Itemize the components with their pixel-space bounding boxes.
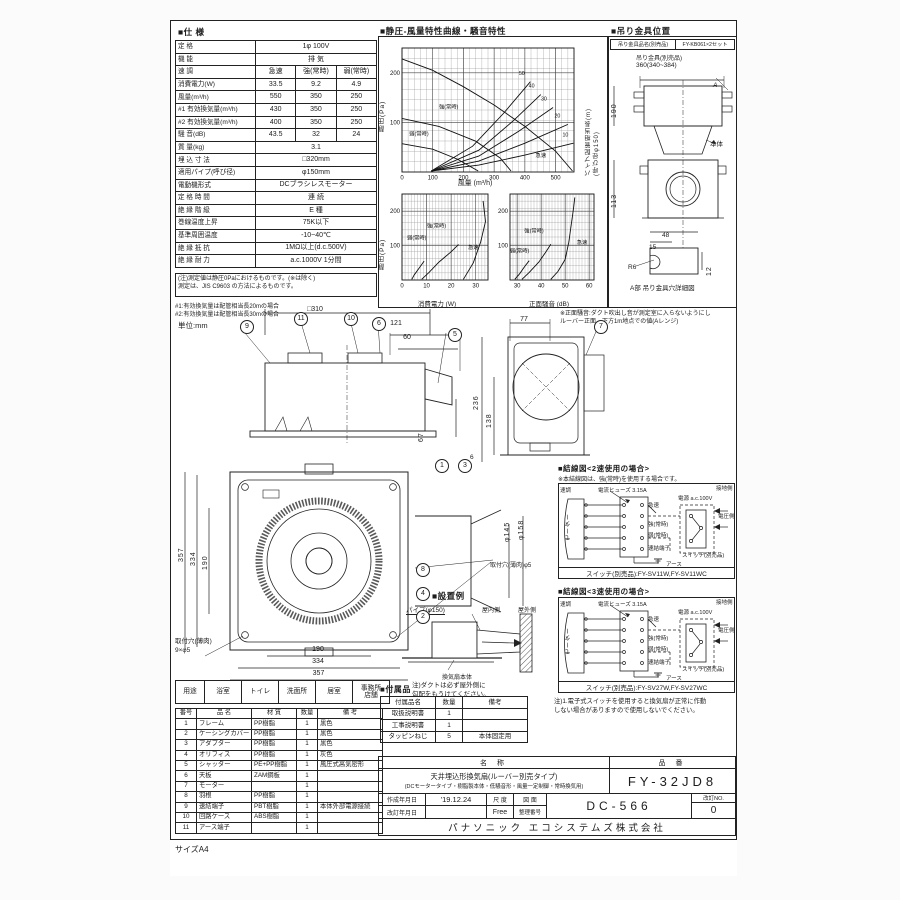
wiring2-tap-low: 弱(常時) xyxy=(648,531,668,539)
parts-cell: ABS樹脂 xyxy=(252,812,297,822)
spec-value: 350 xyxy=(296,91,336,104)
seiri-label: 整理番号 xyxy=(513,805,547,819)
acc-row: タッピンねじ5本体固定用 xyxy=(381,731,528,743)
parts-row: 1フレームPP樹脂1黒色 xyxy=(176,719,383,729)
spec-row: 基準周囲温度-10~40℃ xyxy=(176,229,377,242)
parts-row: 11アース端子1 xyxy=(176,823,383,833)
spec-value: 1φ 100V xyxy=(256,41,377,54)
sheet-size-label: サイズA4 xyxy=(175,844,209,855)
parts-header: 備 考 xyxy=(318,709,383,719)
spec-value: 24 xyxy=(336,129,376,142)
face-dim-357l: 357 xyxy=(178,532,186,562)
wiring3-power-label: 電源 a.c.100V xyxy=(678,608,712,616)
spec-value: 33.5 xyxy=(256,78,296,91)
acc-cell: 1 xyxy=(436,720,463,732)
parts-header-row: 番号品 名材 質数量備 考 xyxy=(176,709,383,719)
spec-row: 適用パイプ(呼び径)φ150mm xyxy=(176,166,377,179)
x-tick: 50 xyxy=(562,284,569,290)
spec-value: □320mm xyxy=(256,154,377,167)
parts-header: 品 名 xyxy=(197,709,252,719)
acc-cell: 1 xyxy=(436,708,463,720)
face-dim-145: φ145 xyxy=(504,508,512,542)
accessories-table: 付属品名数量備考取扱説明書1工事説明書1タッピンねじ5本体固定用 xyxy=(380,696,528,743)
series-label: 強(常時) xyxy=(524,227,544,235)
wiring2-fuse-label: 電流ヒューズ 3.15A xyxy=(598,486,647,494)
series-label: 20 xyxy=(554,113,560,119)
parts-cell xyxy=(318,771,383,781)
parts-cell: 11 xyxy=(176,823,197,833)
bracket-dim-12: 12 xyxy=(706,256,714,276)
install-outdoor-label: 屋外側 xyxy=(518,605,536,614)
parts-header: 材 質 xyxy=(252,709,297,719)
titleblock-name-cell: 天井埋込形換気扇(ルーバー別売タイプ) (DCモータータイプ・樹脂製本体・低騒音… xyxy=(378,768,610,794)
parts-cell xyxy=(252,781,297,791)
parts-cell: PP樹脂 xyxy=(252,719,297,729)
wiring2-volt-side: 電圧側 xyxy=(718,512,735,520)
balloon-7: 7 xyxy=(594,320,608,334)
spec-value: 連 続 xyxy=(256,192,377,205)
spec-row: 機 能排 気 xyxy=(176,53,377,66)
acc-header: 付属品名 xyxy=(381,697,436,709)
series-label: 40 xyxy=(529,84,535,90)
model-number: FY-32JD8 xyxy=(609,768,736,794)
acc-cell: 5 xyxy=(436,731,463,743)
spec-label: #2 有効換気量(m³/h) xyxy=(176,116,256,129)
face-dim-357b: 357 xyxy=(266,670,371,677)
spec-row: 速 調急速強(常時)弱(常時) xyxy=(176,66,377,79)
spec-value: 250 xyxy=(336,103,376,116)
wiring3-terminal-label: 速結端子 xyxy=(648,658,670,666)
parts-cell: PP樹脂 xyxy=(252,729,297,739)
spec-value: 1MΩ以上(d.c.500V) xyxy=(256,242,377,255)
parts-cell: アダプター xyxy=(197,740,252,750)
balloon-10: 10 xyxy=(344,312,358,326)
balloon-2: 2 xyxy=(416,610,430,624)
bracket-dim-15: 15 xyxy=(649,244,656,251)
x-tick: 20 xyxy=(448,284,455,290)
spec-label: 絶 縁 耐 力 xyxy=(176,255,256,268)
spec-label: 機 能 xyxy=(176,53,256,66)
spec-value: 75K以下 xyxy=(256,217,377,230)
y-tick: 200 xyxy=(390,209,401,215)
parts-cell: 1 xyxy=(297,719,318,729)
spec-value: DCブラシレスモーター xyxy=(256,179,377,192)
wiring3-speed-label: 速調 xyxy=(560,600,571,608)
spec-value: 強(常時) xyxy=(296,66,336,79)
usage-item: トイレ xyxy=(242,681,279,704)
wiring2-tap-rapid: 急速 xyxy=(648,501,659,509)
usage-header: 用途 xyxy=(176,681,205,704)
parts-cell: シャッター xyxy=(197,760,252,770)
parts-cell: 1 xyxy=(297,760,318,770)
usage-row: 用途浴室トイレ洗面所居室事務所 店舗 xyxy=(176,681,390,704)
parts-row: 4オリフィスPP樹脂1灰色 xyxy=(176,750,383,760)
face-hole-note: 取付穴(薄肉)φ5 xyxy=(490,560,531,569)
parts-row: 2ケーシングカバーPP樹脂1黒色 xyxy=(176,729,383,739)
power-chart: 0102030100200急速強(常時)弱(常時) xyxy=(382,190,492,296)
spec-label: 定 格 xyxy=(176,41,256,54)
spec-value: -10~40℃ xyxy=(256,229,377,242)
bracket-title: ■吊り金具位置 xyxy=(611,25,671,37)
spec-value: 430 xyxy=(256,103,296,116)
x-tick: 40 xyxy=(538,284,545,290)
power-ylabel: 静圧(Pa) xyxy=(379,210,386,270)
parts-cell xyxy=(318,781,383,791)
parts-cell: フレーム xyxy=(197,719,252,729)
balloon-1: 1 xyxy=(435,459,449,473)
acc-cell xyxy=(463,720,528,732)
parts-header: 番号 xyxy=(176,709,197,719)
series-label: 急速 xyxy=(577,238,588,246)
face-dim-334b: 334 xyxy=(273,658,363,665)
spec-row: #1 有効換気量(m³/h)430350250 xyxy=(176,103,377,116)
parts-header: 数量 xyxy=(297,709,318,719)
spec-label: 風量(m³/h) xyxy=(176,91,256,104)
parts-cell: 本体外部電源接続 xyxy=(318,802,383,812)
acc-cell xyxy=(463,708,528,720)
parts-cell: 羽根 xyxy=(197,792,252,802)
face-dim-190l: 190 xyxy=(202,540,210,570)
parts-cell: PE+PP樹脂 xyxy=(252,760,297,770)
side-dim-310: □310 xyxy=(270,306,360,313)
pq-chart: 0100200300400500100200急速強(常時)弱(常時)102030… xyxy=(382,42,582,188)
acc-cell: タッピンねじ xyxy=(381,731,436,743)
parts-cell: 1 xyxy=(297,781,318,791)
spec-value: 32 xyxy=(296,129,336,142)
spec-value: 550 xyxy=(256,91,296,104)
pq-ylabel: 静圧(Pa) xyxy=(379,72,386,132)
spec-value: 43.5 xyxy=(256,129,296,142)
wiring3-tap-high: 強(常時) xyxy=(648,634,668,642)
side-dim-67: 67 xyxy=(418,418,426,442)
parts-cell: 1 xyxy=(297,812,318,822)
spec-label: 基準周囲温度 xyxy=(176,229,256,242)
scale-value: Free xyxy=(486,805,514,819)
spec-value: 350 xyxy=(296,103,336,116)
parts-cell: 1 xyxy=(297,802,318,812)
spec-label: 絶 縁 階 級 xyxy=(176,204,256,217)
spec-table: 定 格1φ 100V機 能排 気速 調急速強(常時)弱(常時)消費電力(W)33… xyxy=(175,40,377,268)
spec-value: 250 xyxy=(336,116,376,129)
parts-cell: 1 xyxy=(176,719,197,729)
balloon-3: 3 xyxy=(458,459,472,473)
spec-value: 250 xyxy=(336,91,376,104)
front-dim-138: 138 xyxy=(486,398,494,428)
acc-row: 工事説明書1 xyxy=(381,720,528,732)
parts-cell: PP樹脂 xyxy=(252,792,297,802)
wiring2-switch-models: スイッチ(別売品):FY-SV11W,FY-SV11WC xyxy=(558,567,735,579)
drawing-sheet: ■仕 様 定 格1φ 100V機 能排 気速 調急速強(常時)弱(常時)消費電力… xyxy=(170,20,737,876)
spec-label: 質 量(kg) xyxy=(176,141,256,154)
face-hole-note2: 取付穴(薄肉) 9×φ5 xyxy=(175,638,212,656)
parts-cell: 風圧式高気密形 xyxy=(318,760,383,770)
parts-cell: 回路ケース xyxy=(197,812,252,822)
usage-item: 洗面所 xyxy=(279,681,316,704)
x-tick: 60 xyxy=(586,284,593,290)
product-subname: (DCモータータイプ・樹脂製本体・低騒音形・風量一定制御・常時換気用) xyxy=(405,782,584,790)
spec-label: 騒 音(dB) xyxy=(176,129,256,142)
wiring2-switch-label: スイッチ(別売品) xyxy=(682,551,724,559)
parts-cell: PP樹脂 xyxy=(252,750,297,760)
parts-row: 10回路ケースABS樹脂1 xyxy=(176,812,383,822)
spec-row: 埋 込 寸 法□320mm xyxy=(176,154,377,167)
unit-note: 単位:mm xyxy=(178,320,208,331)
bracket-fitting-label: 吊り金具(別売品) xyxy=(636,53,682,62)
parts-row: 5シャッターPE+PP樹脂1風圧式高気密形 xyxy=(176,760,383,770)
parts-cell: 4 xyxy=(176,750,197,760)
install-indoor-label: 屋内側 xyxy=(482,605,500,614)
wiring2-power-label: 電源 a.c.100V xyxy=(678,494,712,502)
drawing-number: DC-566 xyxy=(546,793,692,819)
spec-row: 巻線温度上昇75K以下 xyxy=(176,217,377,230)
wiring3-tap-rapid: 急速 xyxy=(648,615,659,623)
face-dim-190b: 190 xyxy=(288,646,348,653)
spec-row: 騒 音(dB)43.53224 xyxy=(176,129,377,142)
product-name: 天井埋込形換気扇(ルーバー別売タイプ) xyxy=(431,772,558,782)
spec-label: 適用パイプ(呼び径) xyxy=(176,166,256,179)
noise-chart: 30405060100200急速強(常時)弱(常時) xyxy=(496,190,602,296)
wiring3-switch-models: スイッチ(別売品):FY-SV27W,FY-SV27WC xyxy=(558,681,735,693)
parts-cell xyxy=(318,812,383,822)
wiring2-ground-side: 接地側 xyxy=(716,484,733,492)
wiring3-switch-label: スイッチ(別売品) xyxy=(682,665,724,673)
series-label: 弱(常時) xyxy=(407,233,427,241)
acc-row: 取扱説明書1 xyxy=(381,708,528,720)
parts-cell: 8 xyxy=(176,792,197,802)
parts-cell: 速結端子 xyxy=(197,802,252,812)
spec-note: (注)測定値は静圧0Paにおけるものです。(※は除く) 測定は、JIS C960… xyxy=(175,273,377,297)
wiring3-motor-label: モーター xyxy=(566,619,573,655)
balloon-5: 5 xyxy=(448,328,462,342)
spec-label: 速 調 xyxy=(176,66,256,79)
parts-cell: 1 xyxy=(297,750,318,760)
parts-row: 3アダプターPP樹脂1黒色 xyxy=(176,740,383,750)
spec-label: 絶 縁 抵 抗 xyxy=(176,242,256,255)
wiring2-title: ■結線図<2速使用の場合> xyxy=(558,463,649,474)
parts-cell: 3 xyxy=(176,740,197,750)
spec-label: 電動機形式 xyxy=(176,179,256,192)
parts-cell: 7 xyxy=(176,781,197,791)
parts-cell xyxy=(318,823,383,833)
y-tick: 200 xyxy=(498,209,509,215)
y-tick: 100 xyxy=(498,244,509,250)
charts-title: ■静圧-風量特性曲線・騒音特性 xyxy=(380,25,506,37)
x-tick: 30 xyxy=(472,284,479,290)
bracket-drawing xyxy=(616,70,734,276)
spec-row: 絶 縁 耐 力a.c.1000V 1分間 xyxy=(176,255,377,268)
bracket-name-label: 吊り金具品名(別売品) xyxy=(610,39,676,50)
balloon-8: 8 xyxy=(416,563,430,577)
front-dim-236: 236 xyxy=(473,380,481,410)
parts-row: 8羽根PP樹脂1 xyxy=(176,792,383,802)
bracket-dim-48: 48 xyxy=(662,232,669,239)
bracket-dim-width: 360(340~384) xyxy=(636,62,677,69)
spec-value: 9.2 xyxy=(296,78,336,91)
acc-cell: 工事説明書 xyxy=(381,720,436,732)
series-label: 弱(常時) xyxy=(409,129,429,137)
parts-cell: 5 xyxy=(176,760,197,770)
spec-label: 巻線温度上昇 xyxy=(176,217,256,230)
face-dim-334l: 334 xyxy=(190,536,198,566)
wiring3-volt-side: 電圧側 xyxy=(718,626,735,634)
spec-row: #2 有効換気量(m³/h)400350250 xyxy=(176,116,377,129)
install-title: ■設置例 xyxy=(432,590,465,602)
acc-header-row: 付属品名数量備考 xyxy=(381,697,528,709)
face-dim-158: φ158 xyxy=(518,506,526,540)
wiring2-motor-label: モーター xyxy=(566,505,573,541)
usage-item: 居室 xyxy=(316,681,353,704)
spec-label: 定 格 時 間 xyxy=(176,192,256,205)
bracket-dim-r6: R6 xyxy=(628,264,636,271)
series-label: 弱(常時) xyxy=(510,246,530,254)
parts-cell: アース端子 xyxy=(197,823,252,833)
install-body-label: 換気扇本体 xyxy=(442,672,472,681)
wiring3-tap-low: 弱(常時) xyxy=(648,645,668,653)
pipe-length-label: パイプ配管相当長(m) (呼び径φ150) xyxy=(586,56,602,176)
y-tick: 100 xyxy=(390,244,401,250)
parts-cell: 1 xyxy=(297,740,318,750)
series-label: 強(常時) xyxy=(439,103,459,111)
parts-row: 7モーター1 xyxy=(176,781,383,791)
parts-cell: 灰色 xyxy=(318,750,383,760)
spec-row: 定 格1φ 100V xyxy=(176,41,377,54)
parts-cell: ZAM鋼板 xyxy=(252,771,297,781)
wiring3-title: ■結線図<3速使用の場合> xyxy=(558,586,649,597)
x-tick: 500 xyxy=(551,176,562,182)
spec-row: 風量(m³/h)550350250 xyxy=(176,91,377,104)
spec-row: 電動機形式DCブラシレスモーター xyxy=(176,179,377,192)
spec-value: 350 xyxy=(296,116,336,129)
x-tick: 0 xyxy=(400,176,404,182)
spec-value: 3.1 xyxy=(256,141,377,154)
series-label: 急速 xyxy=(468,243,479,251)
x-tick: 10 xyxy=(423,284,430,290)
parts-cell: 9 xyxy=(176,802,197,812)
balloon-6: 6 xyxy=(372,317,386,331)
parts-cell: 1 xyxy=(297,823,318,833)
parts-cell: 1 xyxy=(297,729,318,739)
spec-value: E 種 xyxy=(256,204,377,217)
front-dim-77: 77 xyxy=(502,316,546,323)
y-tick: 100 xyxy=(390,120,401,126)
bracket-caption: A部 吊り金具穴詳細図 xyxy=(630,282,695,292)
revised-label: 改訂年月日 xyxy=(378,805,426,819)
accessories-title: ■付属品 xyxy=(380,684,411,695)
front-view-drawing xyxy=(470,315,610,463)
scanned-spec-sheet: { "page":{"size_label":"サイズA4","unit_not… xyxy=(0,0,900,900)
spec-row: 定 格 時 間連 続 xyxy=(176,192,377,205)
spec-title: ■仕 様 xyxy=(178,26,205,38)
spec-value: φ150mm xyxy=(256,166,377,179)
wiring3-ground-side: 接地側 xyxy=(716,598,733,606)
revised-date xyxy=(425,805,487,819)
side-dim-60: 60 xyxy=(392,334,422,341)
parts-table: 番号品 名材 質数量備 考1フレームPP樹脂1黒色2ケーシングカバーPP樹脂1黒… xyxy=(175,708,383,834)
noise-xlabel: 正面騒音 (dB) xyxy=(504,298,594,308)
parts-cell xyxy=(318,792,383,802)
parts-cell: 黒色 xyxy=(318,740,383,750)
parts-cell: PP樹脂 xyxy=(252,740,297,750)
wiring2-terminal-label: 速結端子 xyxy=(648,544,670,552)
balloon-11: 11 xyxy=(294,312,308,326)
wiring-caution: 注)1.電子式スイッチを使用すると換気扇が正常に作動 しない場合がありますので使… xyxy=(554,698,706,715)
spec-value: 4.9 xyxy=(336,78,376,91)
parts-cell: 黒色 xyxy=(318,729,383,739)
x-tick: 30 xyxy=(514,284,521,290)
acc-header: 数量 xyxy=(436,697,463,709)
pq-xlabel: 風量 (m³/h) xyxy=(420,178,530,188)
parts-cell: 天板 xyxy=(197,771,252,781)
spec-value: a.c.1000V 1分間 xyxy=(256,255,377,268)
wiring2-note: ※本結線図は、強(常時)を使用する場合です。 xyxy=(558,474,680,483)
spec-label: 消費電力(W) xyxy=(176,78,256,91)
spec-row: 質 量(kg)3.1 xyxy=(176,141,377,154)
spec-value: 排 気 xyxy=(256,53,377,66)
wiring3-fuse-label: 電流ヒューズ 3.15A xyxy=(598,600,647,608)
acc-cell: 取扱説明書 xyxy=(381,708,436,720)
y-tick: 200 xyxy=(390,71,401,77)
rev-number: 0 xyxy=(691,802,736,819)
parts-cell: モーター xyxy=(197,781,252,791)
balloon-4: 4 xyxy=(416,587,430,601)
parts-row: 6天板ZAM鋼板1 xyxy=(176,771,383,781)
company-name: パナソニック エコシステムズ株式会社 xyxy=(378,818,736,836)
series-label: 10 xyxy=(562,132,568,138)
parts-cell: PBT樹脂 xyxy=(252,802,297,812)
spec-value: 400 xyxy=(256,116,296,129)
spec-row: 絶 縁 抵 抗1MΩ以上(d.c.500V) xyxy=(176,242,377,255)
balloon-9: 9 xyxy=(240,320,254,334)
acc-header: 備考 xyxy=(463,697,528,709)
spec-row: 消費電力(W)33.59.24.9 xyxy=(176,78,377,91)
usage-table: 用途浴室トイレ洗面所居室事務所 店舗 xyxy=(175,680,390,704)
parts-cell: 1 xyxy=(297,771,318,781)
series-label: 強(常時) xyxy=(427,222,447,230)
spec-value: 弱(常時) xyxy=(336,66,376,79)
parts-cell: 1 xyxy=(297,792,318,802)
wiring2-tap-high: 強(常時) xyxy=(648,520,668,528)
parts-cell xyxy=(252,823,297,833)
parts-cell: 黒色 xyxy=(318,719,383,729)
wiring2-speed-label: 速調 xyxy=(560,486,571,494)
series-label: 30 xyxy=(541,97,547,103)
spec-label: 埋 込 寸 法 xyxy=(176,154,256,167)
parts-cell: 10 xyxy=(176,812,197,822)
spec-label: #1 有効換気量(m³/h) xyxy=(176,103,256,116)
usage-item: 浴室 xyxy=(205,681,242,704)
bracket-name-value: FY-KB061×2セット xyxy=(675,39,735,50)
x-tick: 0 xyxy=(400,284,404,290)
acc-cell: 本体固定用 xyxy=(463,731,528,743)
parts-cell: ケーシングカバー xyxy=(197,729,252,739)
parts-cell: 2 xyxy=(176,729,197,739)
series-label: 50 xyxy=(519,71,525,77)
parts-row: 9速結端子PBT樹脂1本体外部電源接続 xyxy=(176,802,383,812)
parts-cell: 6 xyxy=(176,771,197,781)
spec-value: 急速 xyxy=(256,66,296,79)
spec-row: 絶 縁 階 級E 種 xyxy=(176,204,377,217)
parts-cell: オリフィス xyxy=(197,750,252,760)
